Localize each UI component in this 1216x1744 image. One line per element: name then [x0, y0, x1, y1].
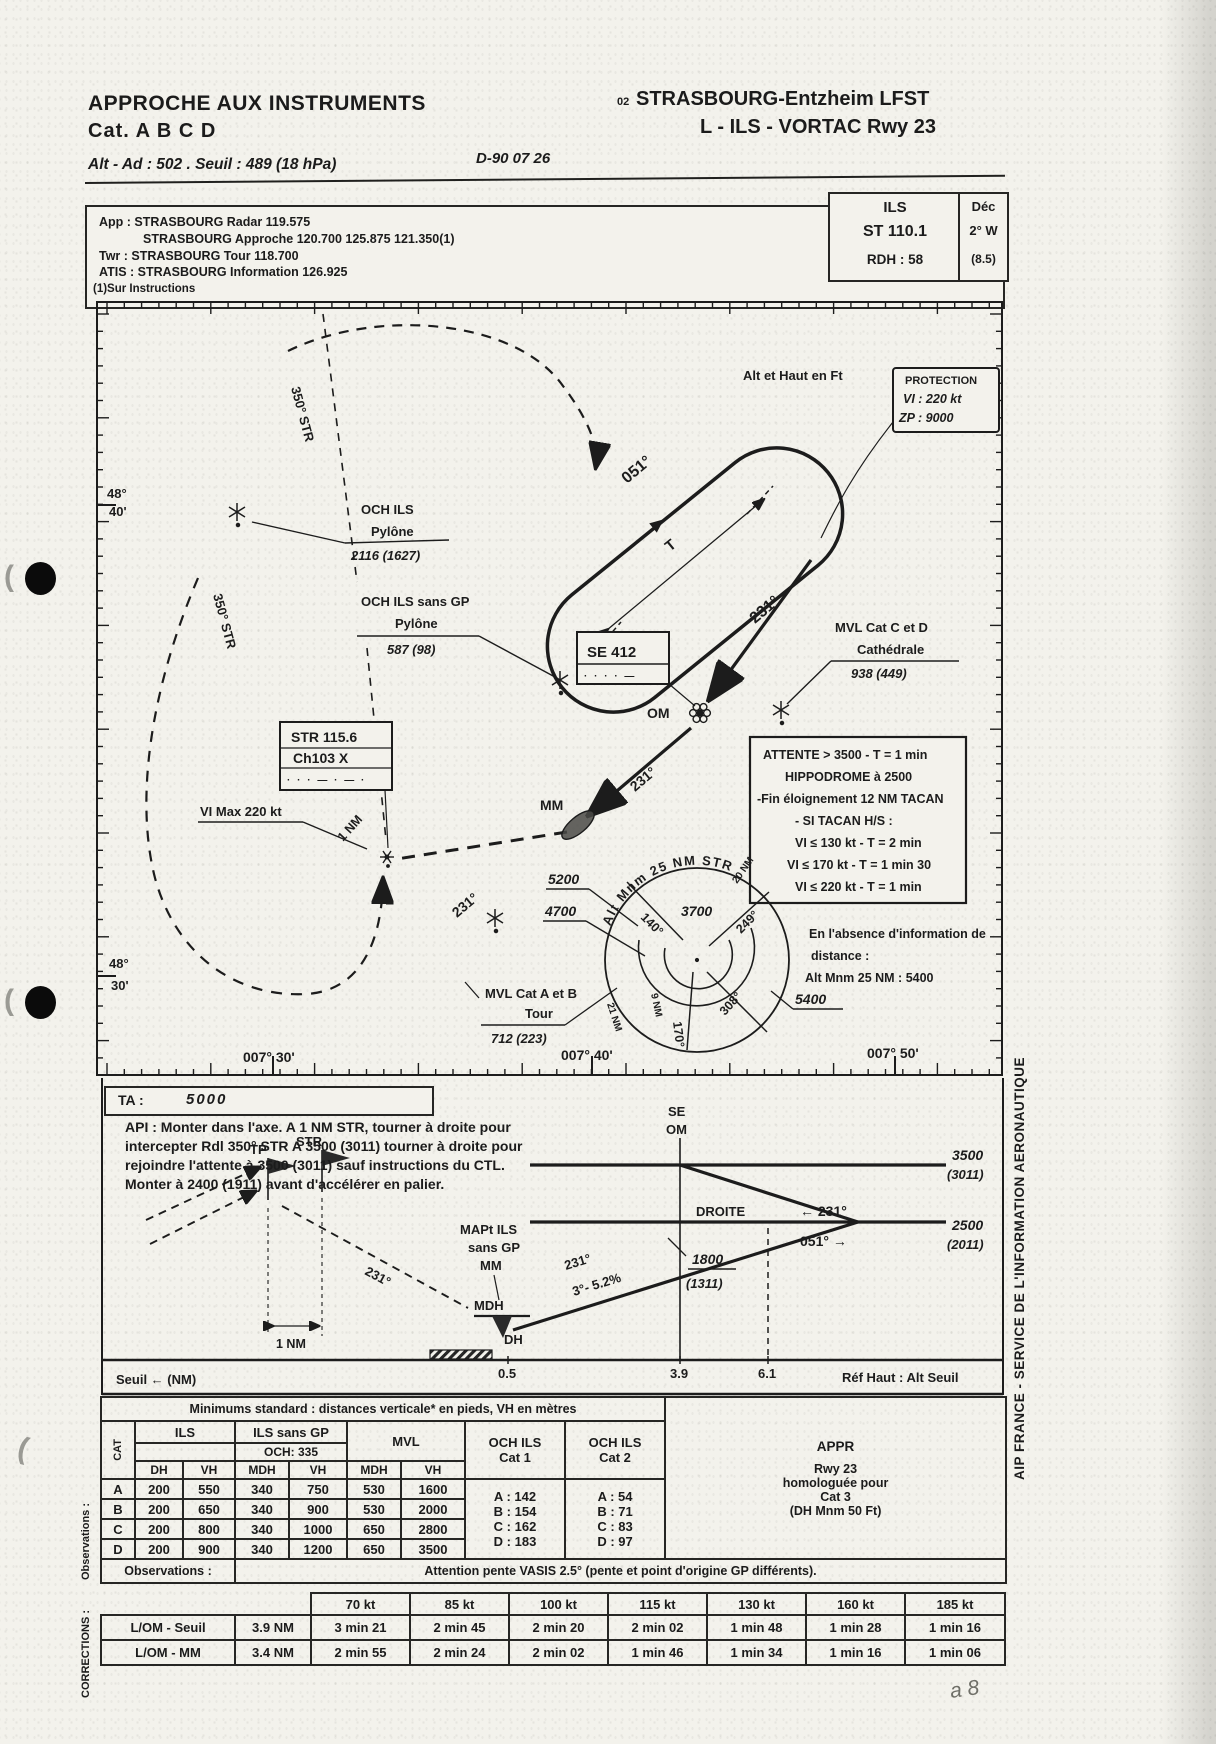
- pencil-mark-icon: (: [4, 984, 14, 1018]
- alt-2011: (2011): [947, 1237, 984, 1252]
- subheader-dh: DH: [135, 1461, 183, 1479]
- lat-label: 48°: [109, 956, 129, 971]
- svg-text:Ch103 X: Ch103 X: [293, 750, 349, 766]
- value-cell: 340: [235, 1519, 289, 1539]
- header-rule: [85, 175, 1005, 184]
- course-outbound: 051° →: [800, 1233, 847, 1249]
- svg-text:231°: 231°: [363, 1263, 394, 1289]
- value-cell: 200: [135, 1499, 183, 1519]
- lon-label: 007° 50': [867, 1045, 919, 1061]
- och-cat1-header: OCH ILS Cat 1: [465, 1421, 565, 1479]
- svg-text:Tour: Tour: [525, 1006, 553, 1021]
- appr-line: homologuée pour: [668, 1476, 1003, 1490]
- timing-value: 3 min 21: [311, 1615, 410, 1640]
- msa-arc-label: Alt Mnm 25 NM STR: [599, 853, 735, 928]
- attente-box: ATTENTE > 3500 - T = 1 min HIPPODROME à …: [750, 737, 966, 903]
- chart-title: APPROCHE AUX INSTRUMENTS: [88, 92, 426, 116]
- appr-header: APPR: [668, 1439, 1003, 1454]
- dist-3-9: 3.9: [670, 1366, 688, 1381]
- glide-slope: 3°- 5.2%: [570, 1270, 623, 1299]
- droite-label: DROITE: [696, 1204, 745, 1219]
- lon-label: 007° 30': [243, 1049, 295, 1065]
- protection-box: PROTECTION VI : 220 kt ZP : 9000: [821, 368, 999, 538]
- msa-boundary-label: 170°: [670, 1021, 687, 1048]
- appr-line: Cat 3: [668, 1490, 1003, 1504]
- timing-value: 2 min 02: [509, 1640, 608, 1665]
- speed-col: 85 kt: [410, 1593, 509, 1615]
- dec-sub: (8.5): [960, 252, 1007, 266]
- svg-text:OCH ILS: OCH ILS: [361, 502, 414, 517]
- timing-distance: 3.4 NM: [235, 1640, 311, 1665]
- dist-0-5: 0.5: [498, 1366, 516, 1381]
- svg-text:5400: 5400: [795, 991, 826, 1007]
- svg-text:712 (223): 712 (223): [491, 1031, 547, 1046]
- svg-text:Alt Mnm 25 NM : 5400: Alt Mnm 25 NM : 5400: [805, 971, 934, 985]
- api-line-1: API : Monter dans l'axe. A 1 NM STR, tou…: [125, 1118, 522, 1137]
- timing-value: 2 min 45: [410, 1615, 509, 1640]
- appr-cell: APPR Rwy 23 homologuée pour Cat 3 (DH Mn…: [665, 1397, 1006, 1559]
- mm-symbol: [558, 806, 599, 844]
- speed-col: 160 kt: [806, 1593, 905, 1615]
- svg-text:VI ≤ 220 kt - T = 1 min: VI ≤ 220 kt - T = 1 min: [795, 880, 922, 894]
- radial-350-label: 350° STR: [210, 592, 239, 651]
- app-frequency: App : STRASBOURG Radar 119.575: [99, 215, 310, 229]
- svg-text:2116 (1627): 2116 (1627): [350, 548, 420, 563]
- svg-text:- SI TACAN H/S :: - SI TACAN H/S :: [795, 814, 893, 828]
- ils-ident: ST 110.1: [830, 223, 960, 241]
- och-ils-label: OCH ILS: [468, 1435, 562, 1450]
- pencil-mark-icon: (: [14, 1431, 32, 1466]
- cat-b: B: [101, 1499, 135, 1519]
- svg-text:HIPPODROME à 2500: HIPPODROME à 2500: [785, 770, 912, 784]
- value-cell: 200: [135, 1539, 183, 1559]
- timing-value: 1 min 48: [707, 1615, 806, 1640]
- value-cell: 750: [289, 1479, 347, 1499]
- cat-a: A: [101, 1479, 135, 1499]
- value-cell: 2000: [401, 1499, 465, 1519]
- punch-hole-top: [25, 562, 56, 595]
- value-cell: 530: [347, 1499, 401, 1519]
- alt-3011: (3011): [947, 1167, 984, 1182]
- alt-3500: 3500: [952, 1147, 983, 1163]
- value-cell: 340: [235, 1539, 289, 1559]
- svg-text:-Fin éloignement 12 NM TACAN: -Fin éloignement 12 NM TACAN: [757, 792, 944, 806]
- mdh-label: MDH: [474, 1298, 504, 1313]
- api-line-3: rejoindre l'attente à 3500 (3011) sauf i…: [125, 1156, 522, 1175]
- svg-text:587 (98): 587 (98): [387, 642, 435, 657]
- cat-d: D: [101, 1539, 135, 1559]
- msa-boundary-label: 308°: [717, 989, 745, 1018]
- svg-text:STR 115.6: STR 115.6: [291, 729, 357, 745]
- svg-text:1 NM: 1 NM: [276, 1337, 306, 1351]
- value-cell: 3500: [401, 1539, 465, 1559]
- se-locator-box: SE 412 · · · · —: [577, 632, 695, 706]
- svg-text:MAPt ILS: MAPt ILS: [460, 1222, 517, 1237]
- ils-sans-gp-header: ILS sans GP: [235, 1421, 347, 1443]
- svg-text:(1311): (1311): [686, 1276, 723, 1291]
- dist-6-1: 6.1: [758, 1366, 776, 1381]
- side-label-observations: Observations :: [80, 1420, 92, 1580]
- chart-date: D-90 07 26: [476, 150, 550, 167]
- speed-col: 185 kt: [905, 1593, 1005, 1615]
- timing-row-label: L/OM - MM: [101, 1640, 235, 1665]
- subheader-mdh: MDH: [347, 1461, 401, 1479]
- subheader-vh: VH: [183, 1461, 235, 1479]
- value-cell: 800: [183, 1519, 235, 1539]
- api-instructions: API : Monter dans l'axe. A 1 NM STR, tou…: [125, 1118, 522, 1194]
- timing-value: 2 min 55: [311, 1640, 410, 1665]
- cat-header: CAT: [101, 1421, 135, 1479]
- timing-value: 2 min 20: [509, 1615, 608, 1640]
- msa-sector-value: 3700: [681, 903, 712, 919]
- appr-line: Rwy 23: [668, 1462, 1003, 1476]
- ils-header: ILS: [135, 1421, 235, 1443]
- ils-rdh: RDH : 58: [830, 252, 960, 267]
- svg-text:5200: 5200: [548, 871, 579, 887]
- holding-t-label: T: [662, 536, 680, 555]
- se-morse-code: · · · · —: [584, 671, 636, 682]
- value-cell: 900: [289, 1499, 347, 1519]
- atis-frequency: ATIS : STRASBOURG Information 126.925: [99, 265, 347, 279]
- msa-ring-label: 9 NM: [648, 992, 664, 1018]
- om-label: OM: [647, 705, 670, 721]
- punch-hole-bottom: [25, 986, 56, 1019]
- value-cell: 900: [183, 1539, 235, 1559]
- speed-col: 130 kt: [707, 1593, 806, 1615]
- svg-text:VI ≤ 170 kt - T = 1 min 30: VI ≤ 170 kt - T = 1 min 30: [787, 858, 931, 872]
- och1-c: C : 162: [468, 1519, 562, 1534]
- timing-value: 1 min 28: [806, 1615, 905, 1640]
- msa-boundary-label: 140°: [638, 910, 666, 938]
- och-cat2-header: OCH ILS Cat 2: [565, 1421, 665, 1479]
- procedure-name: L - ILS - VORTAC Rwy 23: [700, 116, 936, 139]
- units-note: Alt et Haut en Ft: [743, 368, 843, 383]
- lat-label: 48°: [107, 486, 127, 501]
- om-symbol: [690, 704, 711, 723]
- app-frequency-2: STRASBOURG Approche 120.700 125.875 121.…: [143, 232, 455, 246]
- subheader-mdh: MDH: [235, 1461, 289, 1479]
- holding-pattern: T 051° 231°: [521, 421, 870, 739]
- frequency-note: (1)Sur Instructions: [93, 283, 195, 295]
- svg-text:PROTECTION: PROTECTION: [905, 375, 977, 387]
- table-row: L/OM - MM 3.4 NM 2 min 55 2 min 24 2 min…: [101, 1640, 1005, 1665]
- svg-text:ZP : 9000: ZP : 9000: [898, 411, 953, 425]
- mm-label: MM: [540, 797, 563, 813]
- msa-callout-4700: 4700: [543, 903, 645, 956]
- aip-france-margin-text: AIP FRANCE - SERVICE DE L'INFORMATION AE…: [1012, 1000, 1027, 1480]
- och1-a: A : 142: [468, 1489, 562, 1504]
- msa-ring-label: 21 NM: [604, 1002, 624, 1033]
- glide-course: 231°: [562, 1251, 592, 1273]
- runway-symbol: [430, 1350, 492, 1359]
- value-cell: 1600: [401, 1479, 465, 1499]
- entry-paths: [146, 314, 596, 994]
- alt-2500: 2500: [951, 1217, 983, 1233]
- profile-se-label: SE: [668, 1104, 686, 1119]
- och2-b: B : 71: [568, 1504, 662, 1519]
- one-nm-label: 1 NM: [335, 812, 365, 844]
- str-vortac-box: STR 115.6 Ch103 X · · · — · — ·: [280, 722, 392, 848]
- cat2-label: Cat 2: [568, 1450, 662, 1465]
- speed-col: 100 kt: [509, 1593, 608, 1615]
- mapt-callout: MAPt ILS sans GP MM: [460, 1222, 520, 1300]
- ta-value: 5000: [186, 1091, 227, 1108]
- value-cell: 200: [135, 1479, 183, 1499]
- msa-boundary-label: 249°: [733, 908, 761, 936]
- plan-view-map: 48° 40' 48° 30' 007° 30' 007° 40' 007° 5…: [95, 300, 1005, 1078]
- svg-text:distance :: distance :: [811, 949, 869, 963]
- dec-value: 2° W: [960, 223, 1007, 238]
- timing-distance: 3.9 NM: [235, 1615, 311, 1640]
- cat1-label: Cat 1: [468, 1450, 562, 1465]
- svg-text:938 (449): 938 (449): [851, 666, 907, 681]
- ref-haut-label: Réf Haut : Alt Seuil: [842, 1370, 959, 1385]
- cat-c: C: [101, 1519, 135, 1539]
- corrections-table: 70 kt 85 kt 100 kt 115 kt 130 kt 160 kt …: [100, 1592, 1006, 1666]
- empty-cell: [135, 1443, 235, 1461]
- svg-text:VI Max 220 kt: VI Max 220 kt: [200, 804, 282, 819]
- svg-text:1800: 1800: [692, 1251, 723, 1267]
- dec-label: Déc: [960, 199, 1007, 214]
- airport-name: STRASBOURG-Entzheim LFST: [636, 88, 929, 111]
- lat-label: 30': [111, 978, 129, 993]
- ta-box: TA : 5000: [104, 1086, 434, 1116]
- timing-value: 1 min 06: [905, 1640, 1005, 1665]
- track-231-label: 231°: [627, 763, 659, 794]
- och1-d: D : 183: [468, 1534, 562, 1549]
- svg-text:sans GP: sans GP: [468, 1240, 520, 1255]
- value-cell: 200: [135, 1519, 183, 1539]
- declination-box: Déc 2° W (8.5): [958, 192, 1009, 282]
- mvl-header: MVL: [347, 1421, 465, 1461]
- msa-center-vor-icon: [690, 953, 703, 966]
- timing-value: 1 min 46: [608, 1640, 707, 1665]
- no-distance-note: En l'absence d'information de distance :…: [805, 927, 986, 985]
- och1-values: A : 142 B : 154 C : 162 D : 183: [465, 1479, 565, 1559]
- api-line-2: intercepter Rdl 350° STR A 3500 (3011) t…: [125, 1137, 522, 1156]
- svg-text:VI : 220 kt: VI : 220 kt: [903, 392, 962, 406]
- value-cell: 650: [183, 1499, 235, 1519]
- subheader-vh: VH: [289, 1461, 347, 1479]
- value-cell: 550: [183, 1479, 235, 1499]
- svg-text:Alt Mnm 25 NM STR: Alt Mnm 25 NM STR: [599, 853, 735, 928]
- speed-col: 115 kt: [608, 1593, 707, 1615]
- value-cell: 2800: [401, 1519, 465, 1539]
- och2-d: D : 97: [568, 1534, 662, 1549]
- approach-chart-page: ( ( ( APPROCHE AUX INSTRUMENTS Cat. A B …: [0, 0, 1216, 1744]
- value-cell: 650: [347, 1539, 401, 1559]
- twr-frequency: Twr : STRASBOURG Tour 118.700: [99, 249, 299, 263]
- value-cell: 340: [235, 1479, 289, 1499]
- minimums-title: Minimums standard : distances verticale*…: [101, 1397, 665, 1421]
- chart-categories: Cat. A B C D: [88, 120, 216, 143]
- observations-text: Attention pente VASIS 2.5° (pente et poi…: [235, 1559, 1006, 1583]
- value-cell: 1200: [289, 1539, 347, 1559]
- och1-b: B : 154: [468, 1504, 562, 1519]
- obstacle-callout-cathedrale: MVL Cat C et D Cathédrale 938 (449): [787, 620, 959, 704]
- appr-line: (DH Mnm 50 Ft): [668, 1504, 1003, 1518]
- timing-value: 1 min 16: [905, 1615, 1005, 1640]
- profile-om-label: OM: [666, 1122, 687, 1137]
- ils-label: ILS: [830, 199, 960, 216]
- mvl-ab-callout: MVL Cat A et B Tour 712 (223): [465, 982, 617, 1046]
- empty-cell: [101, 1593, 311, 1615]
- pencil-mark-icon: (: [4, 560, 14, 594]
- och2-values: A : 54 B : 71 C : 83 D : 97: [565, 1479, 665, 1559]
- value-cell: 650: [347, 1519, 401, 1539]
- obstacle-callout-och-ils: OCH ILS Pylône 2116 (1627): [252, 502, 449, 563]
- track-231-label: 231°: [449, 889, 481, 920]
- value-cell: 530: [347, 1479, 401, 1499]
- str-morse-code: · · · — · — ·: [287, 775, 366, 786]
- observations-row: Observations : Attention pente VASIS 2.5…: [101, 1559, 1006, 1583]
- course-inbound: ← 231°: [800, 1203, 847, 1219]
- ta-label: TA :: [118, 1092, 144, 1108]
- och-335: OCH: 335: [235, 1443, 347, 1461]
- svg-text:MVL Cat A et B: MVL Cat A et B: [485, 986, 577, 1001]
- handwritten-mark: a 8: [948, 1676, 980, 1704]
- timing-value: 1 min 16: [806, 1640, 905, 1665]
- svg-text:Pylône: Pylône: [371, 524, 414, 539]
- och2-a: A : 54: [568, 1489, 662, 1504]
- svg-text:4700: 4700: [544, 903, 576, 919]
- timing-value: 1 min 34: [707, 1640, 806, 1665]
- svg-text:MVL Cat C et D: MVL Cat C et D: [835, 620, 928, 635]
- aerodrome-elevation: Alt - Ad : 502 . Seuil : 489 (18 hPa): [88, 156, 336, 174]
- subheader-vh: VH: [401, 1461, 465, 1479]
- svg-text:OCH ILS sans GP: OCH ILS sans GP: [361, 594, 470, 609]
- obstacle-callout-och-ils-sans-gp: OCH ILS sans GP Pylône 587 (98): [357, 594, 555, 677]
- radial-350-label: 350° STR: [288, 385, 317, 444]
- lat-label: 40': [109, 504, 127, 519]
- chart-code: 02: [617, 96, 629, 108]
- svg-text:Cathédrale: Cathédrale: [857, 642, 924, 657]
- minimums-table: Minimums standard : distances verticale*…: [100, 1396, 1007, 1584]
- value-cell: 1000: [289, 1519, 347, 1539]
- seuil-label: Seuil ← (NM): [116, 1372, 196, 1387]
- svg-text:SE 412: SE 412: [587, 644, 636, 661]
- vortac-symbol: [380, 851, 394, 867]
- speeds-header-row: 70 kt 85 kt 100 kt 115 kt 130 kt 160 kt …: [101, 1593, 1005, 1615]
- svg-text:En l'absence d'information de: En l'absence d'information de: [809, 927, 986, 941]
- svg-text:MM: MM: [480, 1258, 502, 1273]
- lon-label: 007° 40': [561, 1047, 613, 1063]
- observations-label: Observations :: [101, 1559, 235, 1583]
- table-row: L/OM - Seuil 3.9 NM 3 min 21 2 min 45 2 …: [101, 1615, 1005, 1640]
- side-label-corrections: CORRECTIONS :: [80, 1588, 92, 1698]
- timing-value: 2 min 24: [410, 1640, 509, 1665]
- och-ils-label: OCH ILS: [568, 1435, 662, 1450]
- speed-col: 70 kt: [311, 1593, 410, 1615]
- timing-row-label: L/OM - Seuil: [101, 1615, 235, 1640]
- outbound-course-label: 051°: [619, 453, 655, 487]
- och2-c: C : 83: [568, 1519, 662, 1534]
- ils-ident-box: ILS ST 110.1 RDH : 58: [828, 192, 962, 282]
- timing-value: 2 min 02: [608, 1615, 707, 1640]
- svg-text:ATTENTE > 3500 - T = 1 min: ATTENTE > 3500 - T = 1 min: [763, 748, 927, 762]
- svg-text:VI ≤ 130 kt - T = 2 min: VI ≤ 130 kt - T = 2 min: [795, 836, 922, 850]
- svg-text:Pylône: Pylône: [395, 616, 438, 631]
- api-line-4: Monter à 2400 (1911) avant d'accélérer e…: [125, 1175, 522, 1194]
- value-cell: 340: [235, 1499, 289, 1519]
- dh-label: DH: [504, 1332, 523, 1347]
